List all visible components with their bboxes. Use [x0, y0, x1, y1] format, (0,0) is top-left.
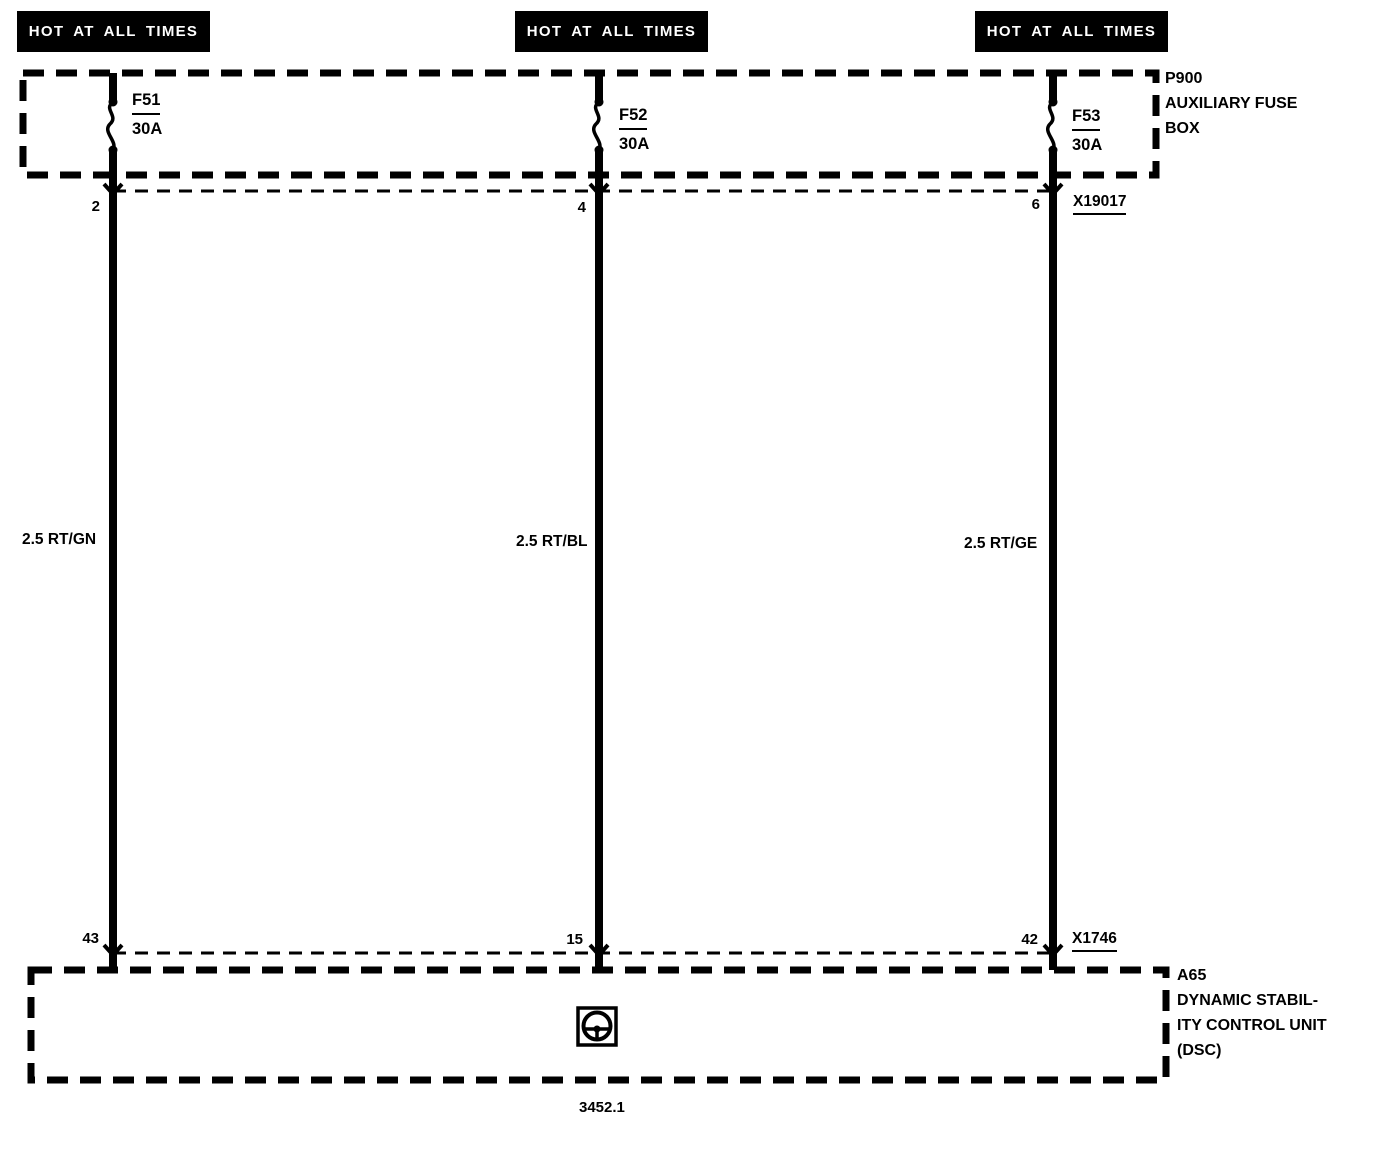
fuse-rating: 30A — [619, 136, 649, 153]
fuse-box-name-line2: BOX — [1165, 116, 1297, 141]
fuse-symbol-f51 — [108, 102, 114, 150]
fuse-label-f51: F51 30A — [132, 92, 162, 137]
fuse-box-label: P900 AUXILIARY FUSE BOX — [1165, 66, 1297, 141]
top-pin-1: 2 — [66, 198, 100, 215]
wire-f52 — [590, 73, 608, 970]
top-pin-3: 6 — [1006, 196, 1040, 213]
wire-color-label-2: 2.5 RT/BL — [516, 533, 587, 551]
fuse-box-name-line1: AUXILIARY FUSE — [1165, 91, 1297, 116]
control-unit-name-line2: ITY CONTROL UNIT — [1177, 1013, 1327, 1038]
wire-f51 — [104, 73, 122, 970]
bottom-pin-2: 15 — [549, 931, 583, 948]
fuse-symbol-f53 — [1048, 102, 1054, 150]
fuse-box-outline — [23, 73, 1156, 175]
fuse-label-f53: F53 30A — [1072, 108, 1102, 153]
control-unit-outline — [31, 970, 1166, 1080]
power-banner-3: HOT AT ALL TIMES — [975, 11, 1168, 52]
bottom-pin-3: 42 — [1004, 931, 1038, 948]
bottom-pin-1: 43 — [65, 930, 99, 947]
fuse-box-id: P900 — [1165, 66, 1297, 91]
wire-color-label-3: 2.5 RT/GE — [964, 535, 1037, 553]
control-unit-name-line1: DYNAMIC STABIL- — [1177, 988, 1327, 1013]
control-unit-name-line3: (DSC) — [1177, 1038, 1327, 1063]
fuse-code: F53 — [1072, 108, 1100, 131]
control-unit-id: A65 — [1177, 963, 1327, 988]
diagram-number: 3452.1 — [579, 1099, 625, 1116]
power-banner-1: HOT AT ALL TIMES — [17, 11, 210, 52]
fuse-code: F51 — [132, 92, 160, 115]
wire-f53 — [1044, 73, 1062, 970]
fuse-rating: 30A — [1072, 137, 1102, 154]
fuse-rating: 30A — [132, 121, 162, 138]
wire-color-label-1: 2.5 RT/GN — [22, 531, 96, 549]
power-banner-2: HOT AT ALL TIMES — [515, 11, 708, 52]
control-unit-label: A65 DYNAMIC STABIL- ITY CONTROL UNIT (DS… — [1177, 963, 1327, 1063]
top-pin-2: 4 — [552, 199, 586, 216]
wiring-diagram-page: HOT AT ALL TIMES HOT AT ALL TIMES HOT AT… — [0, 0, 1376, 1152]
fuse-code: F52 — [619, 107, 647, 130]
fuse-symbol-f52 — [594, 102, 600, 150]
steering-wheel-icon — [578, 1008, 616, 1045]
fuse-label-f52: F52 30A — [619, 107, 649, 152]
diagram-artwork — [0, 0, 1376, 1152]
connector-id-bottom: X1746 — [1072, 930, 1117, 952]
connector-id-top: X19017 — [1073, 193, 1126, 215]
